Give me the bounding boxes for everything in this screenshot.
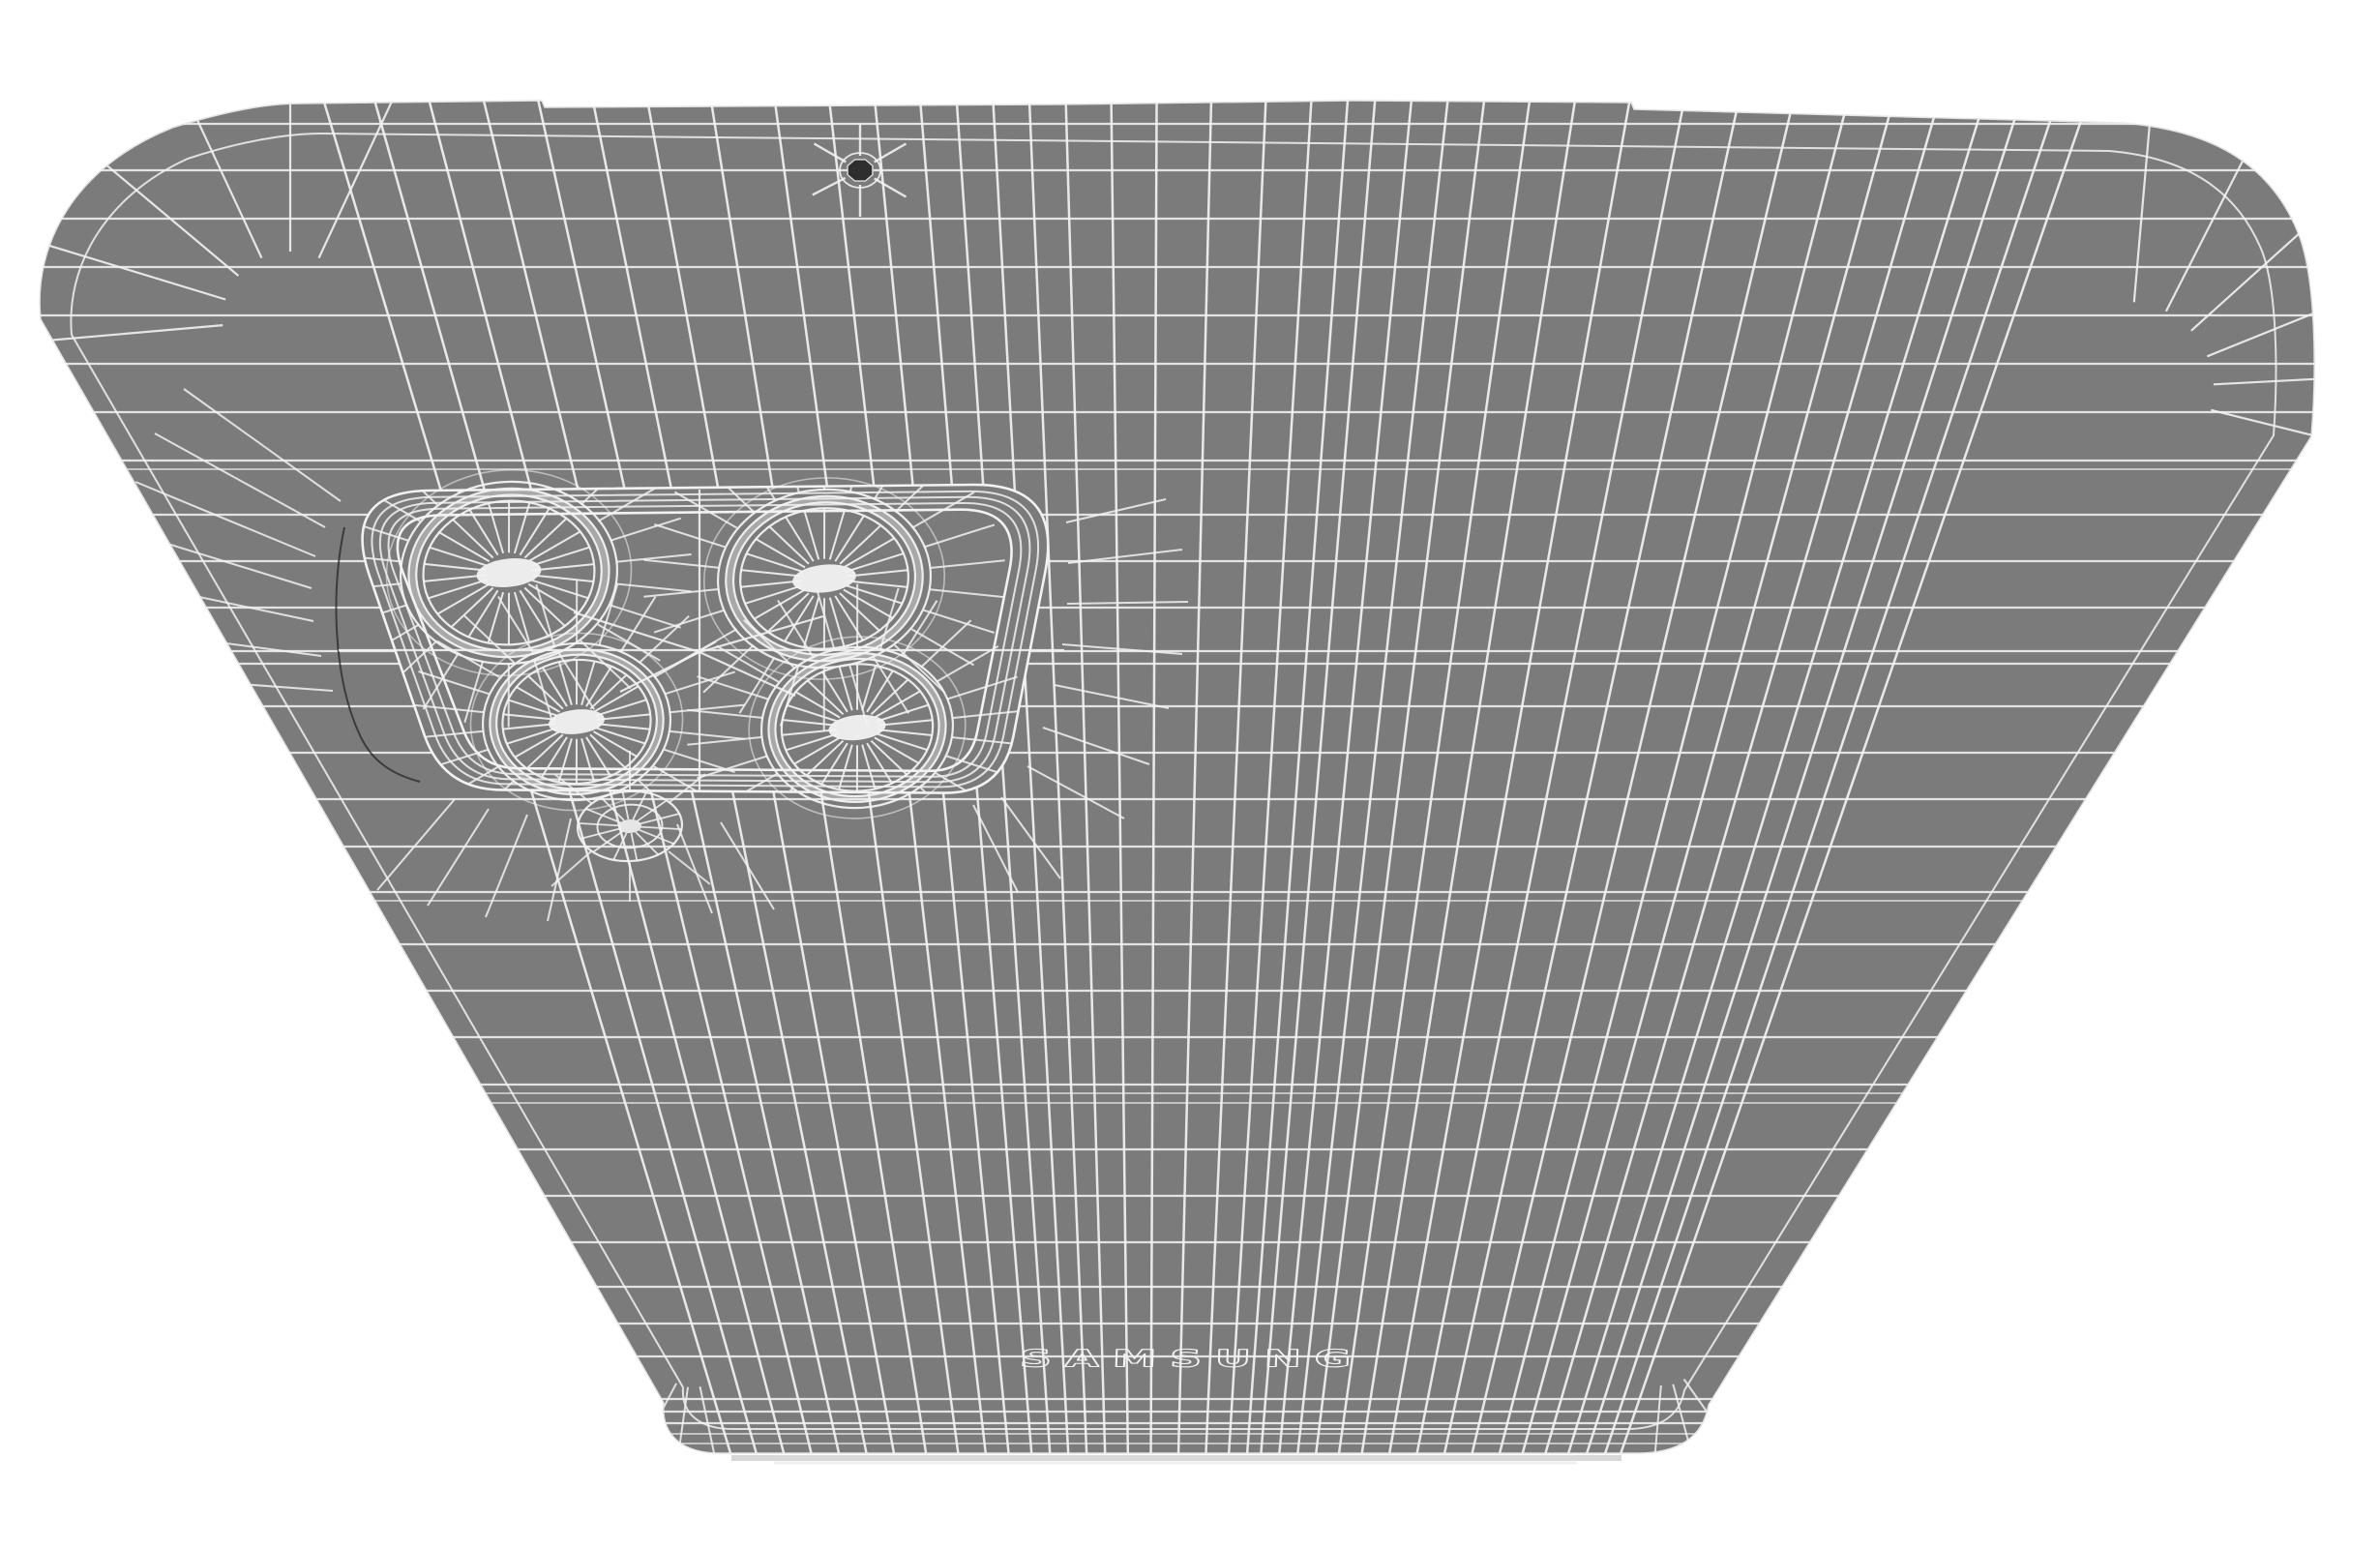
brand-logo-text: SAMSUNG <box>1019 1345 1364 1373</box>
phone-wireframe-render: SAMSUNG <box>0 0 2380 1548</box>
bottom-frame-highlight <box>731 1458 1621 1463</box>
brand-logo-group: SAMSUNG <box>1019 1345 1364 1373</box>
phone-body-layer <box>40 101 2314 1463</box>
phone-silhouette <box>40 101 2314 1453</box>
render-viewport: SAMSUNG <box>0 0 2380 1548</box>
